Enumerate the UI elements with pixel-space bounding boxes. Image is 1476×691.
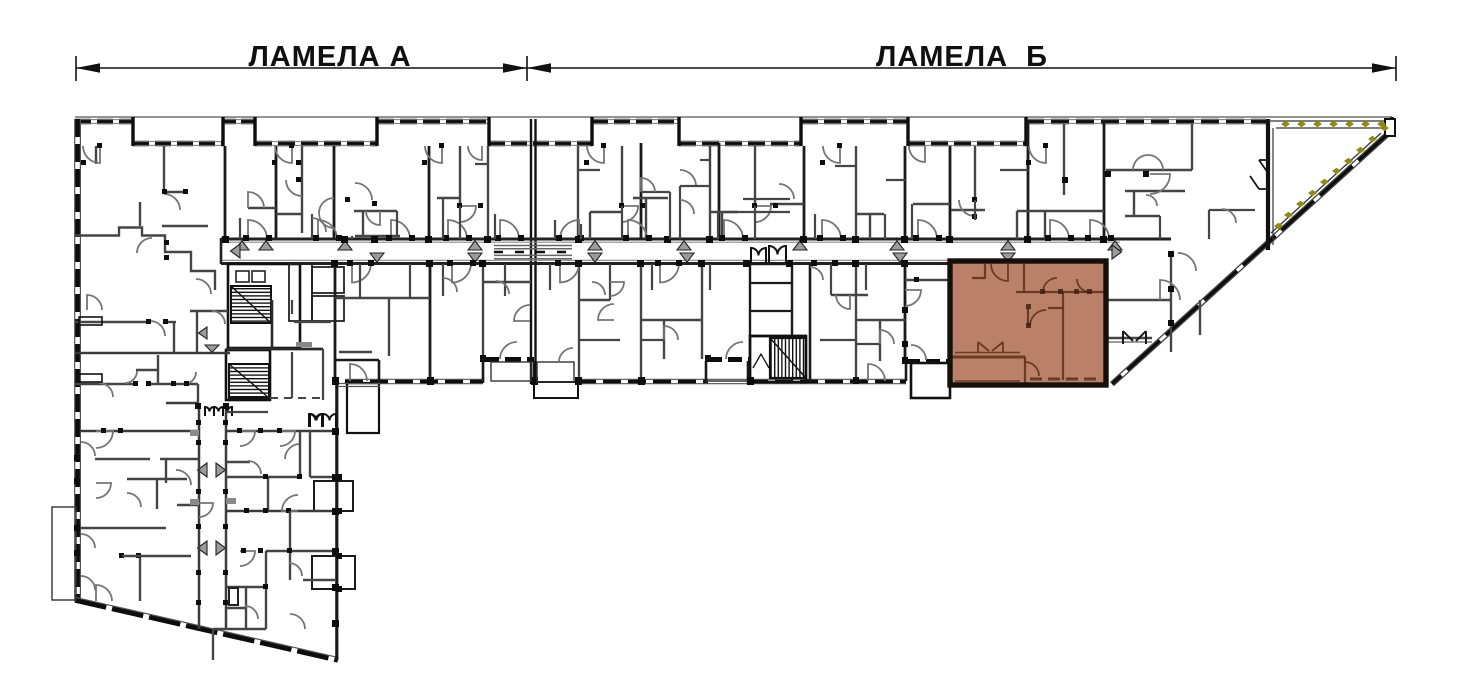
svg-text:ЛАМЕЛА А: ЛАМЕЛА А xyxy=(248,41,411,73)
svg-text:ЛАМЕЛА Б: ЛАМЕЛА Б xyxy=(876,41,1048,73)
